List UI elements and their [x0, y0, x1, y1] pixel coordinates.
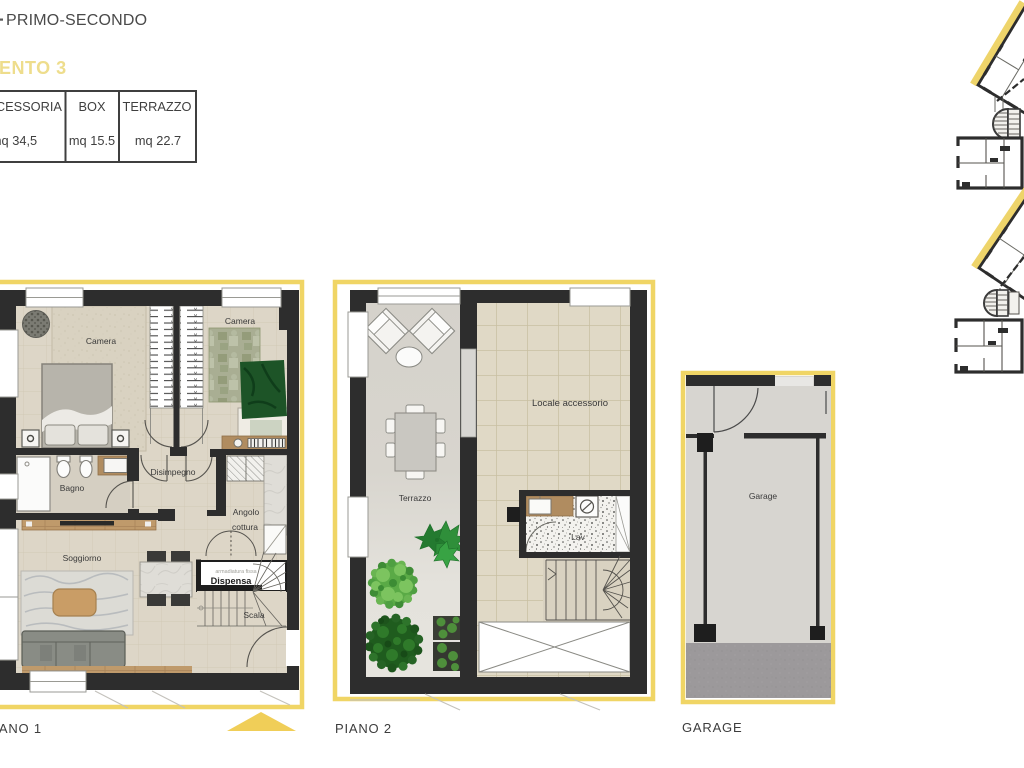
svg-text:Camera: Camera: [225, 316, 256, 326]
svg-text:armadiatura fissa: armadiatura fissa: [215, 569, 256, 575]
svg-text:PIANO 1: PIANO 1: [0, 721, 42, 736]
svg-text:Lav: Lav: [571, 532, 585, 542]
svg-text:Garage: Garage: [749, 491, 778, 501]
svg-text:cottura: cottura: [232, 522, 258, 532]
svg-text:Camera: Camera: [86, 336, 117, 346]
svg-text:GARAGE: GARAGE: [682, 720, 742, 735]
svg-text:BOX: BOX: [78, 99, 105, 114]
svg-text:Dispensa: Dispensa: [211, 576, 253, 586]
svg-text:PIANO 2: PIANO 2: [335, 721, 392, 736]
svg-text:Terrazzo: Terrazzo: [399, 493, 432, 503]
svg-text:Angolo: Angolo: [233, 507, 260, 517]
svg-text:mq 34,5: mq 34,5: [0, 133, 37, 148]
svg-text:mq 15.5: mq 15.5: [69, 133, 115, 148]
svg-text:Locale accessorio: Locale accessorio: [532, 398, 608, 409]
svg-text:Scala: Scala: [243, 610, 265, 620]
svg-text:Soggiorno: Soggiorno: [63, 553, 102, 563]
svg-text:mq 22.7: mq 22.7: [135, 133, 181, 148]
svg-text:Disimpegno: Disimpegno: [151, 467, 196, 477]
svg-text:ENTO 3: ENTO 3: [0, 58, 67, 78]
svg-text:ACCESSORIA: ACCESSORIA: [0, 99, 62, 114]
svg-text:TERRAZZO: TERRAZZO: [123, 99, 192, 114]
svg-text:Bagno: Bagno: [60, 483, 85, 493]
svg-text:PRIMO-SECONDO: PRIMO-SECONDO: [6, 12, 147, 29]
